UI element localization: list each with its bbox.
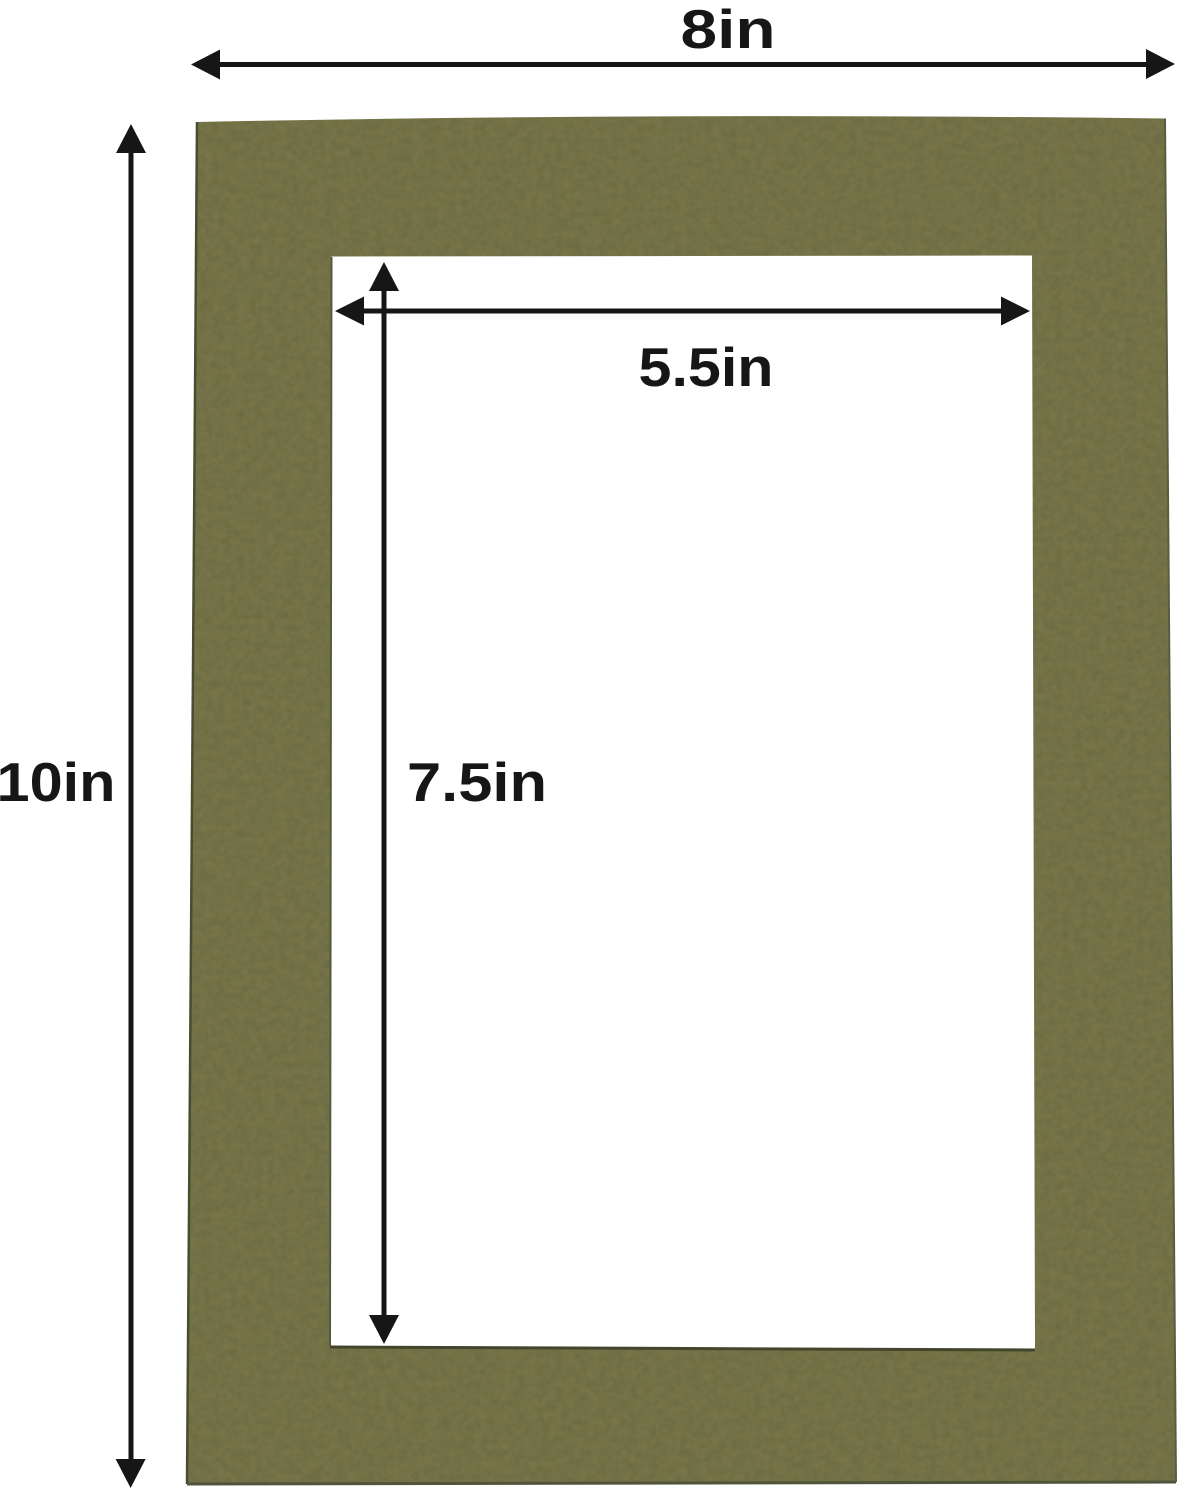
svg-text:10in: 10in xyxy=(0,752,116,813)
svg-text:8in: 8in xyxy=(681,0,776,60)
svg-text:5.5in: 5.5in xyxy=(639,337,774,398)
svg-text:7.5in: 7.5in xyxy=(407,752,547,813)
